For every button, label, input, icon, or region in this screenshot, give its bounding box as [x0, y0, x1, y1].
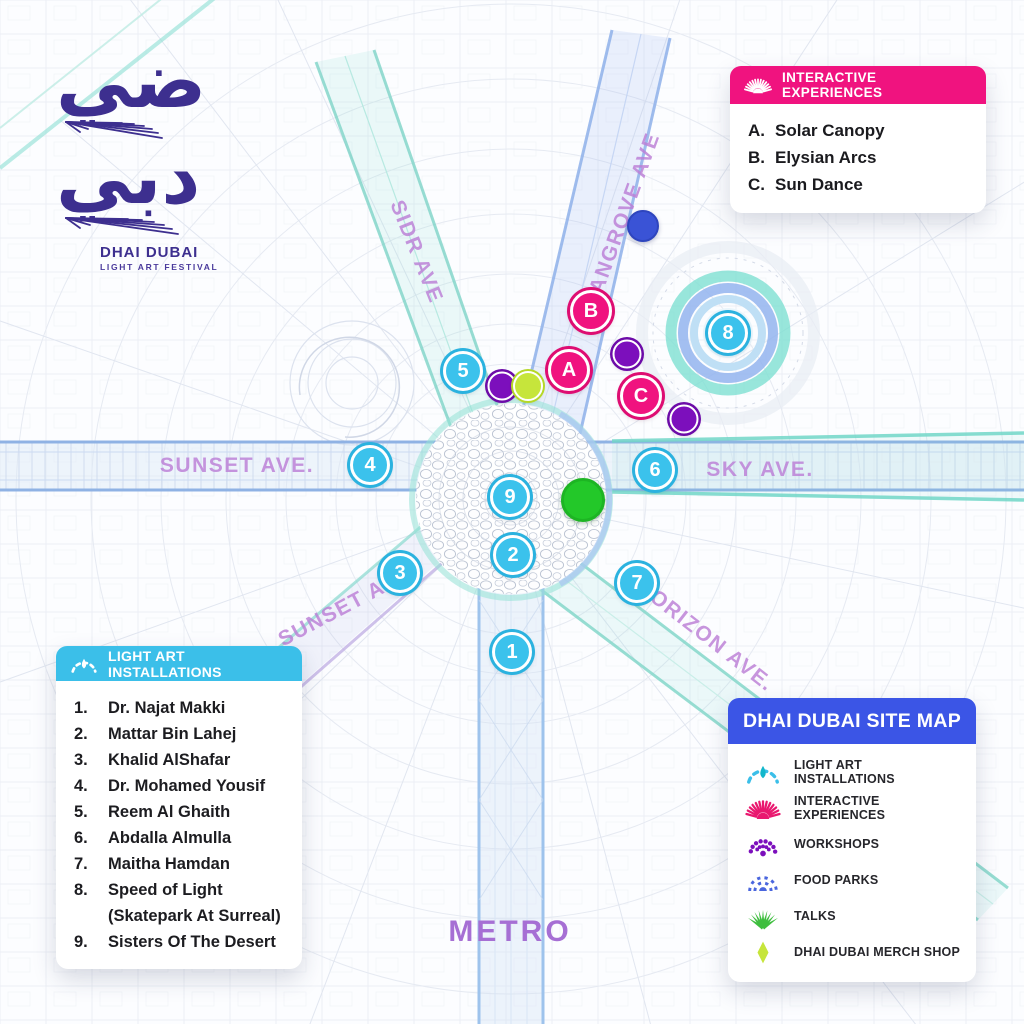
installations-list: 1.Dr. Najat Makki2.Mattar Bin Lahej3.Kha… [56, 681, 302, 969]
interactive-experiences-title: INTERACTIVE EXPERIENCES [782, 70, 973, 100]
installation-number: 2. [74, 721, 108, 747]
experience-key: B. [748, 144, 775, 171]
site-map-poster: SIDR AVEMANGROVE AVESUNSET AVE.SKY AVE.S… [0, 0, 1024, 1024]
legend-label: WORKSHOPS [794, 837, 879, 851]
marker-installation-7[interactable]: 7 [617, 563, 657, 603]
installation-item: 3.Khalid AlShafar [74, 747, 290, 773]
installation-item: 6.Abdalla Almulla [74, 825, 290, 851]
dots-arc-icon [742, 831, 784, 858]
logo-arabic-bottom: دبي [56, 142, 256, 212]
installation-item: 7.Maitha Hamdan [74, 851, 290, 877]
marker-installation-2[interactable]: 2 [493, 535, 533, 575]
site-map-title: DHAI DUBAI SITE MAP [743, 710, 961, 733]
experience-key: C. [748, 171, 775, 198]
installation-label: Khalid AlShafar [108, 747, 230, 773]
marker-installation-9[interactable]: 9 [490, 477, 530, 517]
installation-sublabel: (Skatepark At Surreal) [74, 903, 290, 929]
installation-item: 2.Mattar Bin Lahej [74, 721, 290, 747]
installation-item: 4.Dr. Mohamed Yousif [74, 773, 290, 799]
legend-item: FOOD PARKS [742, 862, 966, 898]
experience-label: Solar Canopy [775, 117, 885, 144]
legend-label: TALKS [794, 909, 836, 923]
logo-title: DHAI DUBAI [100, 244, 256, 261]
marker-installation-6[interactable]: 6 [635, 450, 675, 490]
marker-experience-a[interactable]: A [548, 349, 590, 391]
installations-title: LIGHT ART INSTALLATIONS [108, 648, 289, 680]
installations-panel: LIGHT ART INSTALLATIONS 1.Dr. Najat Makk… [56, 646, 302, 969]
marker-merch-shop[interactable] [513, 371, 543, 401]
legend-label: FOOD PARKS [794, 873, 878, 887]
marker-food-park[interactable] [627, 210, 659, 242]
interactive-experiences-header: INTERACTIVE EXPERIENCES [730, 66, 986, 104]
experience-item: B.Elysian Arcs [748, 144, 970, 171]
diamond-icon [742, 939, 784, 966]
marker-installation-1[interactable]: 1 [492, 632, 532, 672]
legend-label: INTERACTIVE EXPERIENCES [794, 794, 966, 822]
site-map-header: DHAI DUBAI SITE MAP [728, 698, 976, 744]
marker-workshop-3[interactable] [670, 405, 699, 434]
legend-item: INTERACTIVE EXPERIENCES [742, 790, 966, 826]
logo-subtitle: LIGHT ART FESTIVAL [100, 262, 256, 272]
sunburst-icon [743, 74, 773, 96]
legend-label: DHAI DUBAI MERCH SHOP [794, 945, 960, 959]
installation-number: 4. [74, 773, 108, 799]
installation-label: Dr. Mohamed Yousif [108, 773, 265, 799]
installation-item: 8.Speed of Light [74, 877, 290, 903]
logo-arabic-top: ضي [56, 46, 256, 116]
installation-item: 1.Dr. Najat Makki [74, 695, 290, 721]
legend-item: TALKS [742, 898, 966, 934]
installation-number: 1. [74, 695, 108, 721]
installation-number: 5. [74, 799, 108, 825]
legend-item: DHAI DUBAI MERCH SHOP [742, 934, 966, 970]
installation-number: 7. [74, 851, 108, 877]
installations-header: LIGHT ART INSTALLATIONS [56, 646, 302, 681]
festival-logo: ضي دبي DHAI DUBAI LIGHT ART FESTIVAL [56, 46, 256, 272]
installation-number: 8. [74, 877, 108, 903]
legend-item: WORKSHOPS [742, 826, 966, 862]
experience-item: A.Solar Canopy [748, 117, 970, 144]
fan-icon [742, 903, 784, 930]
sunburst-icon [742, 795, 784, 822]
marker-installation-5[interactable]: 5 [443, 351, 483, 391]
legend-label: LIGHT ART INSTALLATIONS [794, 758, 966, 786]
installation-number: 6. [74, 825, 108, 851]
experience-item: C.Sun Dance [748, 171, 970, 198]
arc-drop-icon [742, 759, 784, 786]
installation-label: Sisters Of The Desert [108, 929, 276, 955]
marker-installation-4[interactable]: 4 [350, 445, 390, 485]
site-map-legend-panel: DHAI DUBAI SITE MAP LIGHT ART INSTALLATI… [728, 698, 976, 982]
marker-workshop-2[interactable] [613, 340, 642, 369]
installation-label: Mattar Bin Lahej [108, 721, 236, 747]
marker-installation-8[interactable]: 8 [708, 313, 748, 353]
experience-key: A. [748, 117, 775, 144]
installation-item: 9.Sisters Of The Desert [74, 929, 290, 955]
marker-talks[interactable] [561, 478, 605, 522]
experience-label: Sun Dance [775, 171, 863, 198]
interactive-experiences-list: A.Solar CanopyB.Elysian ArcsC.Sun Dance [730, 104, 986, 213]
marker-experience-c[interactable]: C [620, 375, 662, 417]
site-map-legend-list: LIGHT ART INSTALLATIONS INTERACTIVE EXPE… [728, 744, 976, 982]
installation-label: Speed of Light [108, 877, 223, 903]
marker-installation-3[interactable]: 3 [380, 553, 420, 593]
installation-label: Abdalla Almulla [108, 825, 231, 851]
interactive-experiences-panel: INTERACTIVE EXPERIENCES A.Solar CanopyB.… [730, 66, 986, 213]
installation-number: 3. [74, 747, 108, 773]
installation-label: Dr. Najat Makki [108, 695, 225, 721]
installation-label: Reem Al Ghaith [108, 799, 230, 825]
legend-item: LIGHT ART INSTALLATIONS [742, 754, 966, 790]
marker-experience-b[interactable]: B [570, 290, 612, 332]
arc-drop-icon [69, 653, 99, 675]
installation-label: Maitha Hamdan [108, 851, 230, 877]
dash-arc-icon [742, 867, 784, 894]
installation-item: 5.Reem Al Ghaith [74, 799, 290, 825]
installation-number: 9. [74, 929, 108, 955]
experience-label: Elysian Arcs [775, 144, 876, 171]
